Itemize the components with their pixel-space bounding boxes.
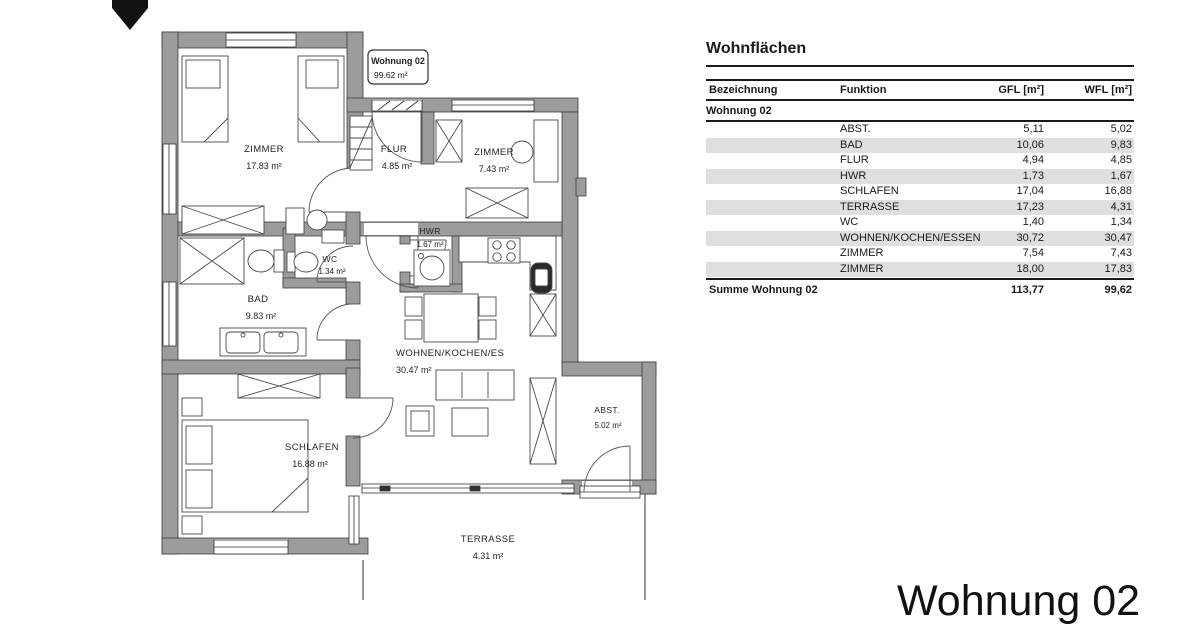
unit-label-title: Wohnung 02 <box>371 56 425 66</box>
table-header-row: Bezeichnung Funktion GFL [m²] WFL [m²] <box>706 79 1134 101</box>
cell-gfl: 7,54 <box>990 246 1044 262</box>
cell-funktion: WC <box>840 215 990 231</box>
cell-funktion: BAD <box>840 138 990 154</box>
furniture <box>180 56 558 534</box>
column-header-wfl: WFL [m²] <box>1044 84 1134 96</box>
section-header: Wohnung 02 <box>706 101 1134 122</box>
sum-gfl: 113,77 <box>990 284 1044 296</box>
room-label-zimmer-2: ZIMMER <box>474 147 514 158</box>
room-area-zimmer-2: 7.43 m² <box>479 164 510 174</box>
unit-footer-title: Wohnung 02 <box>897 577 1140 626</box>
room-label-abst: ABST. <box>594 405 620 415</box>
terrace-outline <box>363 494 645 600</box>
cell-wfl: 1,34 <box>1044 215 1134 231</box>
room-label-flur: FLUR <box>381 144 407 155</box>
room-area-flur: 4.85 m² <box>382 161 413 171</box>
room-label-zimmer-1: ZIMMER <box>244 144 284 155</box>
cell-wfl: 5,02 <box>1044 122 1134 138</box>
sum-row: Summe Wohnung 02 113,77 99,62 <box>706 278 1134 300</box>
column-header-gfl: GFL [m²] <box>990 84 1044 96</box>
column-header-bezeichnung: Bezeichnung <box>706 84 840 96</box>
cell-gfl: 1,40 <box>990 215 1044 231</box>
cell-funktion: ZIMMER <box>840 262 990 278</box>
room-label-wohnen: WOHNEN/KOCHEN/ES <box>396 348 504 359</box>
cell-wfl: 4,31 <box>1044 200 1134 216</box>
cell-wfl: 16,88 <box>1044 184 1134 200</box>
cell-gfl: 17,23 <box>990 200 1044 216</box>
cell-wfl: 30,47 <box>1044 231 1134 247</box>
cell-wfl: 7,43 <box>1044 246 1134 262</box>
room-label-wc: WC <box>323 254 338 264</box>
room-area-zimmer-1: 17.83 m² <box>246 161 282 171</box>
unit-label-area: 99.62 m² <box>374 70 408 80</box>
unit-label-box: Wohnung 02 99.62 m² <box>368 50 428 84</box>
cell-funktion: ZIMMER <box>840 246 990 262</box>
cell-wfl: 17,83 <box>1044 262 1134 278</box>
room-area-hwr: 1.67 m² <box>416 240 443 249</box>
table-title: Wohnflächen <box>706 40 1134 67</box>
room-area-abst: 5.02 m² <box>594 421 621 430</box>
table-row: FLUR 4,94 4,85 <box>706 153 1134 169</box>
cell-gfl: 17,04 <box>990 184 1044 200</box>
cell-wfl: 9,83 <box>1044 138 1134 154</box>
room-area-wohnen: 30.47 m² <box>396 365 432 375</box>
room-label-schlafen: SCHLAFEN <box>285 442 339 453</box>
room-label-bad: BAD <box>248 294 269 305</box>
room-area-bad: 9.83 m² <box>246 311 277 321</box>
north-arrow-icon <box>112 0 148 30</box>
floor-plan: Wohnung 02 99.62 m² ZIMMER 17.83 m² FLUR… <box>0 0 700 600</box>
cell-gfl: 10,06 <box>990 138 1044 154</box>
cell-funktion: TERRASSE <box>840 200 990 216</box>
cell-funktion: WOHNEN/KOCHEN/ESSEN <box>840 231 990 247</box>
table-row: HWR 1,73 1,67 <box>706 169 1134 185</box>
cell-gfl: 5,11 <box>990 122 1044 138</box>
room-area-wc: 1.34 m² <box>318 267 345 276</box>
room-label-hwr: HWR <box>419 226 441 236</box>
cell-gfl: 30,72 <box>990 231 1044 247</box>
cell-funktion: SCHLAFEN <box>840 184 990 200</box>
room-label-terrasse: TERRASSE <box>461 534 515 545</box>
table-row: WOHNEN/KOCHEN/ESSEN 30,72 30,47 <box>706 231 1134 247</box>
cell-gfl: 1,73 <box>990 169 1044 185</box>
cell-gfl: 18,00 <box>990 262 1044 278</box>
table-row: BAD 10,06 9,83 <box>706 138 1134 154</box>
table-row: ZIMMER 18,00 17,83 <box>706 262 1134 278</box>
cell-funktion: HWR <box>840 169 990 185</box>
column-header-funktion: Funktion <box>840 84 990 96</box>
sum-label: Summe Wohnung 02 <box>706 284 990 296</box>
table-row: ZIMMER 7,54 7,43 <box>706 246 1134 262</box>
cell-wfl: 1,67 <box>1044 169 1134 185</box>
sum-wfl: 99,62 <box>1044 284 1134 296</box>
room-area-schlafen: 16.88 m² <box>292 459 328 469</box>
room-area-terrasse: 4.31 m² <box>473 551 504 561</box>
table-row: ABST. 5,11 5,02 <box>706 122 1134 138</box>
table-row: WC 1,40 1,34 <box>706 215 1134 231</box>
cell-wfl: 4,85 <box>1044 153 1134 169</box>
cell-funktion: ABST. <box>840 122 990 138</box>
cell-funktion: FLUR <box>840 153 990 169</box>
cell-gfl: 4,94 <box>990 153 1044 169</box>
area-table: Wohnflächen Bezeichnung Funktion GFL [m²… <box>706 40 1134 300</box>
table-row: SCHLAFEN 17,04 16,88 <box>706 184 1134 200</box>
table-row: TERRASSE 17,23 4,31 <box>706 200 1134 216</box>
